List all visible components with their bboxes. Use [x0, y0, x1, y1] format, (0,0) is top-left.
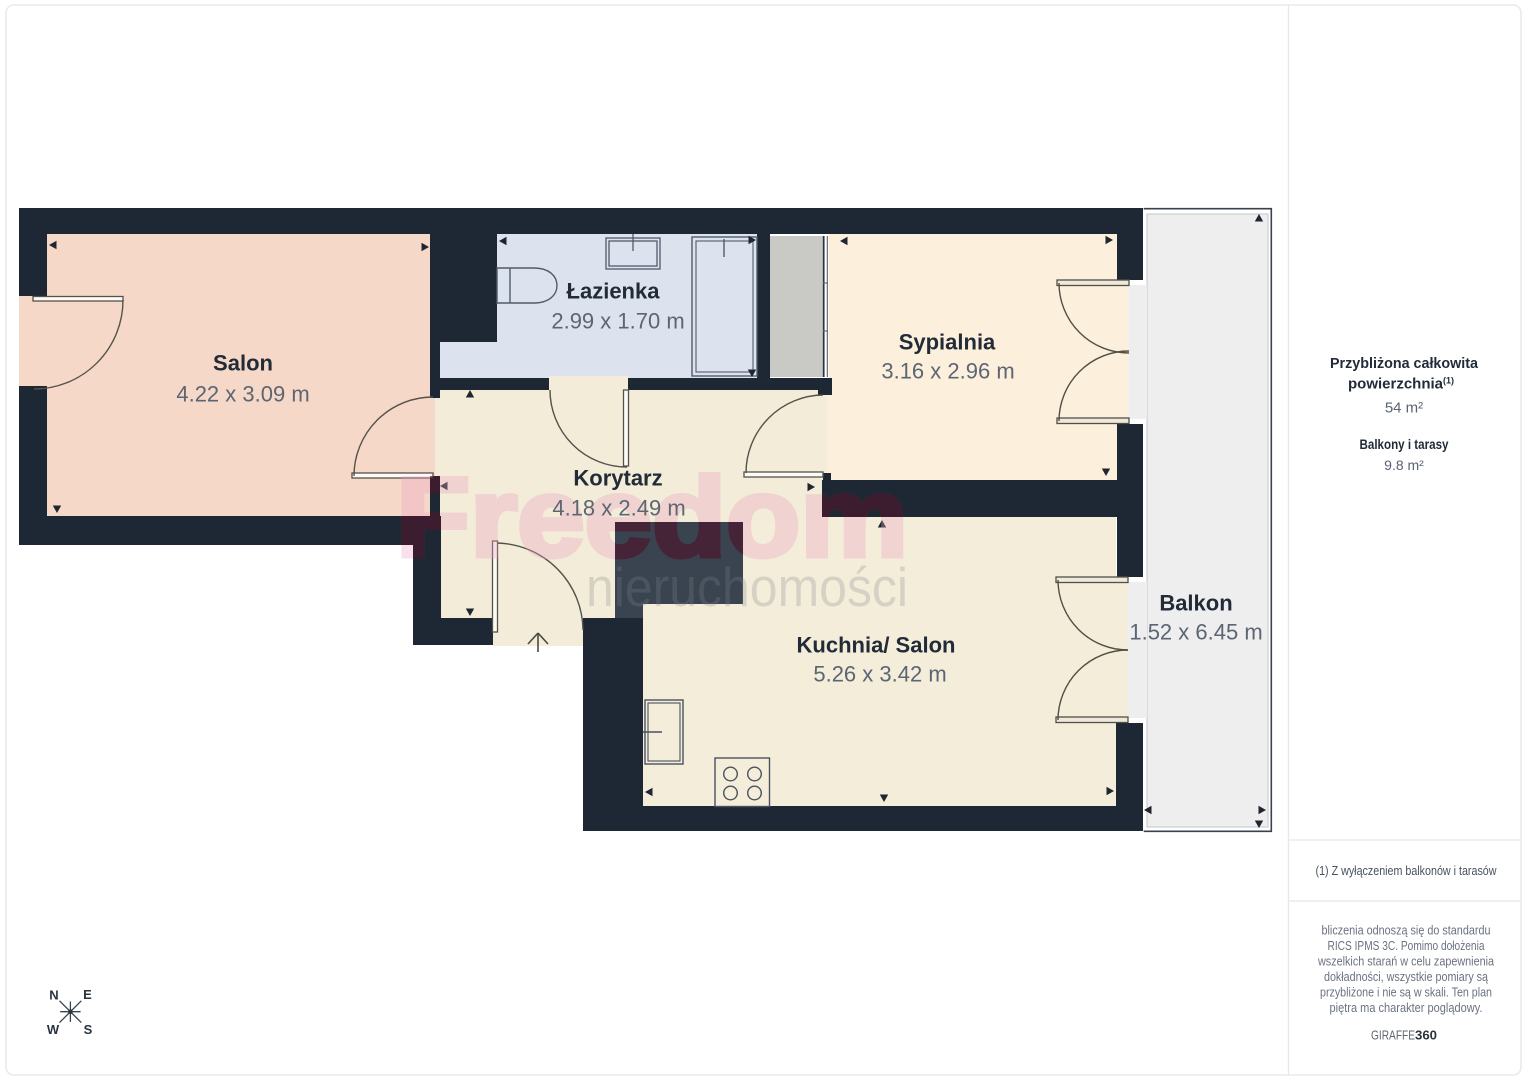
- svg-text:9.8 m²: 9.8 m²: [1384, 457, 1424, 473]
- svg-text:powierzchnia(1): powierzchnia(1): [1348, 376, 1454, 393]
- svg-text:piętra ma charakter poglądowy.: piętra ma charakter poglądowy.: [1330, 1000, 1483, 1015]
- svg-text:2.99 x 1.70 m: 2.99 x 1.70 m: [551, 309, 684, 334]
- svg-text:3.16 x 2.96 m: 3.16 x 2.96 m: [881, 359, 1014, 384]
- svg-text:Salon: Salon: [213, 351, 273, 376]
- svg-text:5.26 x 3.42 m: 5.26 x 3.42 m: [813, 662, 946, 687]
- svg-text:Korytarz: Korytarz: [573, 466, 662, 491]
- svg-text:N: N: [49, 988, 58, 1003]
- svg-text:RICS IPMS 3C. Pomimo dołożenia: RICS IPMS 3C. Pomimo dołożenia: [1328, 938, 1486, 953]
- svg-text:Łazienka: Łazienka: [567, 279, 661, 304]
- svg-text:Sypialnia: Sypialnia: [899, 330, 996, 355]
- svg-text:Kuchnia/ Salon: Kuchnia/ Salon: [797, 633, 956, 658]
- svg-text:S: S: [84, 1022, 93, 1037]
- svg-text:wszelkich starań w celu zapewn: wszelkich starań w celu zapewnienia: [1317, 954, 1495, 969]
- svg-text:nieruchomości: nieruchomości: [586, 556, 908, 618]
- svg-text:dokładności, wszystkie pomiary: dokładności, wszystkie pomiary są: [1324, 969, 1489, 984]
- svg-text:Balkon: Balkon: [1159, 591, 1232, 616]
- svg-text:Przybliżona całkowita: Przybliżona całkowita: [1330, 356, 1479, 372]
- svg-text:Balkony i tarasy: Balkony i tarasy: [1360, 437, 1449, 452]
- svg-text:E: E: [83, 987, 92, 1002]
- svg-text:(1) Z wyłączeniem balkonów i t: (1) Z wyłączeniem balkonów i tarasów: [1316, 863, 1497, 878]
- svg-text:54 m²: 54 m²: [1385, 400, 1423, 417]
- svg-text:W: W: [47, 1022, 60, 1037]
- svg-text:przybliżone i nie są w skali.: przybliżone i nie są w skali. Ten plan: [1320, 984, 1492, 999]
- svg-text:bliczenia odnoszą się do stand: bliczenia odnoszą się do standardu: [1322, 923, 1491, 938]
- svg-text:1.52 x 6.45 m: 1.52 x 6.45 m: [1129, 620, 1262, 645]
- svg-text:GIRAFFE360: GIRAFFE360: [1371, 1029, 1437, 1043]
- svg-text:4.18 x 2.49 m: 4.18 x 2.49 m: [552, 496, 685, 521]
- svg-text:4.22 x 3.09 m: 4.22 x 3.09 m: [176, 382, 309, 407]
